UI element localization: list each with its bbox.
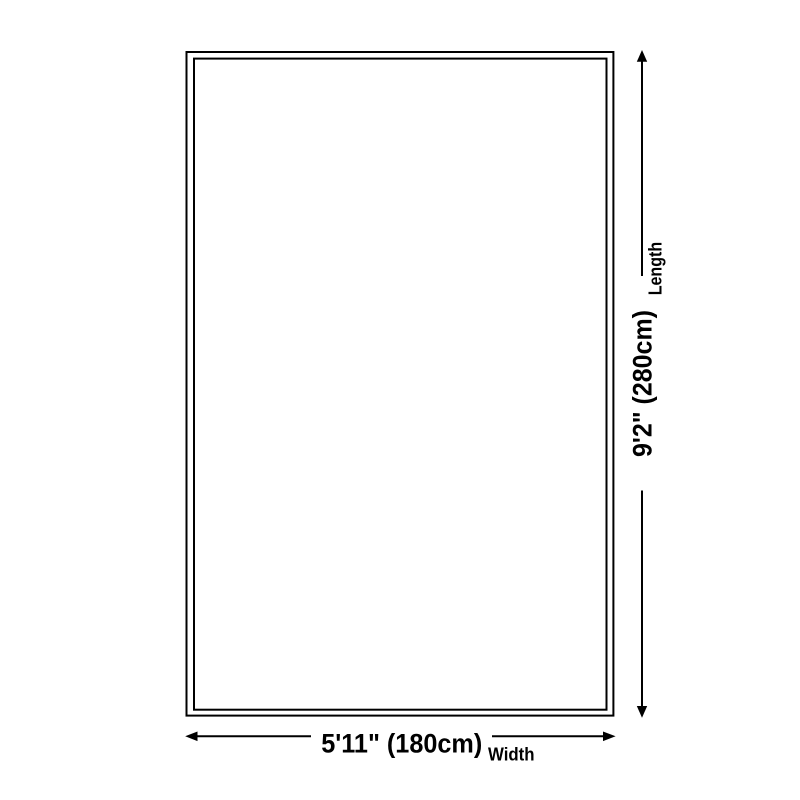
svg-text:Length: Length (644, 242, 665, 296)
svg-text:9'2" (280cm): 9'2" (280cm) (628, 310, 658, 457)
svg-text:Width: Width (488, 743, 535, 764)
svg-text:5'11" (180cm): 5'11" (180cm) (321, 729, 482, 759)
